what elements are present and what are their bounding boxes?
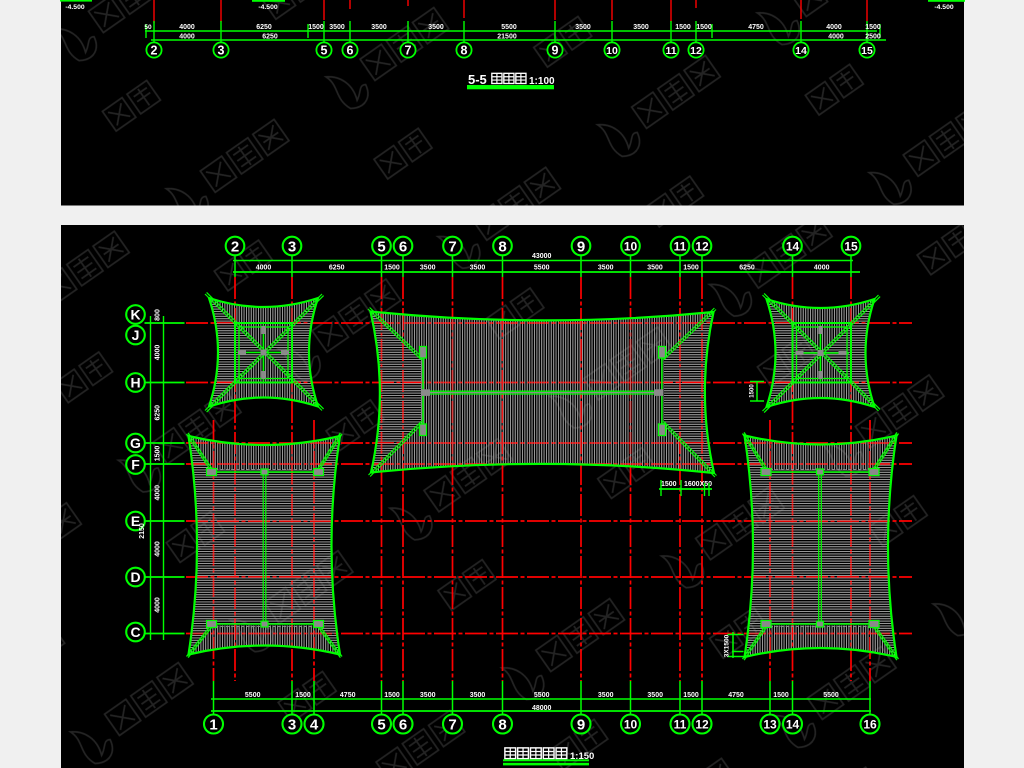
svg-text:12: 12	[695, 240, 709, 254]
svg-text:4750: 4750	[748, 24, 764, 31]
svg-text:5500: 5500	[534, 265, 550, 272]
svg-text:2: 2	[151, 44, 158, 58]
svg-text:2: 2	[231, 239, 239, 256]
svg-text:4000: 4000	[826, 24, 842, 31]
svg-text:3500: 3500	[470, 265, 486, 272]
svg-text:1500: 1500	[683, 265, 699, 272]
svg-text:5500: 5500	[823, 692, 839, 699]
svg-text:16: 16	[863, 718, 877, 732]
svg-text:1500: 1500	[661, 481, 677, 488]
svg-text:F: F	[131, 457, 140, 473]
svg-text:14: 14	[786, 240, 800, 254]
svg-text:3500: 3500	[633, 24, 649, 31]
svg-text:8: 8	[461, 44, 468, 58]
svg-text:6250: 6250	[262, 34, 278, 41]
svg-text:1500: 1500	[750, 384, 756, 398]
svg-text:6: 6	[399, 717, 407, 734]
svg-text:4000: 4000	[828, 34, 844, 41]
svg-text:5: 5	[377, 239, 385, 256]
svg-text:5500: 5500	[245, 692, 261, 699]
svg-text:4000: 4000	[179, 24, 195, 31]
svg-text:1500: 1500	[675, 24, 691, 31]
svg-text:43000: 43000	[532, 253, 552, 260]
svg-text:5-5: 5-5	[468, 72, 487, 87]
svg-text:2150: 2150	[139, 523, 146, 539]
svg-text:14: 14	[786, 718, 800, 732]
svg-text:1500: 1500	[865, 24, 881, 31]
svg-text:11: 11	[674, 718, 687, 732]
svg-text:6250: 6250	[256, 24, 272, 31]
svg-text:3500: 3500	[420, 265, 436, 272]
svg-text:-4.500: -4.500	[258, 4, 277, 11]
svg-text:13: 13	[763, 718, 777, 732]
svg-text:3500: 3500	[428, 24, 444, 31]
svg-text:3500: 3500	[647, 692, 663, 699]
svg-text:3500: 3500	[371, 24, 387, 31]
svg-text:K: K	[130, 307, 140, 323]
svg-text:3500: 3500	[598, 265, 614, 272]
svg-text:8: 8	[498, 239, 506, 256]
svg-text:3: 3	[288, 239, 296, 256]
svg-text:1500: 1500	[308, 24, 324, 31]
svg-text:11: 11	[674, 240, 687, 254]
svg-text:4000: 4000	[256, 265, 272, 272]
svg-text:1500: 1500	[384, 692, 400, 699]
svg-text:3: 3	[218, 44, 225, 58]
svg-text:9: 9	[577, 717, 585, 734]
svg-text:4000: 4000	[155, 345, 162, 361]
svg-text:1500: 1500	[683, 692, 699, 699]
svg-text:14: 14	[795, 45, 807, 57]
svg-text:4750: 4750	[728, 692, 744, 699]
svg-text:48000: 48000	[532, 705, 552, 712]
svg-text:3500: 3500	[329, 24, 345, 31]
svg-text:1500: 1500	[384, 265, 400, 272]
svg-text:12: 12	[690, 45, 702, 57]
svg-text:1500: 1500	[295, 692, 311, 699]
svg-text:8: 8	[498, 717, 506, 734]
svg-text:4000: 4000	[155, 597, 162, 613]
svg-text:3500: 3500	[647, 265, 663, 272]
svg-text:4000: 4000	[814, 265, 830, 272]
svg-text:800: 800	[155, 309, 162, 321]
svg-text:3500: 3500	[420, 692, 436, 699]
svg-text:5: 5	[377, 717, 385, 734]
svg-text:5500: 5500	[501, 24, 517, 31]
svg-text:7: 7	[405, 44, 412, 58]
svg-text:7: 7	[448, 717, 456, 734]
svg-text:3500: 3500	[575, 24, 591, 31]
svg-text:-4.500: -4.500	[934, 4, 953, 11]
svg-text:1500: 1500	[696, 24, 712, 31]
svg-text:21500: 21500	[497, 34, 517, 41]
svg-text:4000: 4000	[155, 485, 162, 501]
svg-text:3500: 3500	[470, 692, 486, 699]
svg-text:3X1500: 3X1500	[724, 634, 731, 657]
svg-text:50: 50	[144, 24, 152, 31]
svg-text:-4.500: -4.500	[65, 4, 84, 11]
svg-text:7: 7	[448, 239, 456, 256]
svg-text:1600X50: 1600X50	[684, 481, 712, 488]
svg-text:6250: 6250	[739, 265, 755, 272]
svg-text:3: 3	[288, 717, 296, 734]
svg-text:H: H	[130, 375, 140, 391]
svg-text:3500: 3500	[598, 692, 614, 699]
svg-text:4000: 4000	[179, 34, 195, 41]
svg-text:5: 5	[321, 44, 328, 58]
svg-text:15: 15	[861, 45, 873, 57]
svg-text:2500: 2500	[865, 34, 881, 41]
svg-text:4750: 4750	[340, 692, 356, 699]
svg-text:J: J	[132, 327, 140, 343]
svg-text:6250: 6250	[155, 405, 162, 421]
svg-text:12: 12	[695, 718, 709, 732]
svg-text:10: 10	[606, 45, 618, 57]
svg-text:1500: 1500	[155, 446, 162, 462]
svg-text:9: 9	[552, 44, 559, 58]
svg-text:G: G	[130, 435, 141, 451]
svg-text:15: 15	[844, 240, 858, 254]
svg-text:10: 10	[624, 240, 638, 254]
svg-text:D: D	[130, 569, 140, 585]
svg-text:1: 1	[209, 717, 217, 734]
svg-text:6250: 6250	[329, 265, 345, 272]
svg-text:1500: 1500	[773, 692, 789, 699]
svg-text:5500: 5500	[534, 692, 550, 699]
svg-text:10: 10	[624, 718, 638, 732]
svg-text:C: C	[130, 624, 140, 640]
svg-text:4000: 4000	[155, 541, 162, 557]
svg-text:11: 11	[665, 45, 676, 57]
svg-text:6: 6	[347, 44, 354, 58]
svg-text:9: 9	[577, 239, 585, 256]
svg-text:4: 4	[310, 717, 319, 734]
svg-text:6: 6	[399, 239, 407, 256]
